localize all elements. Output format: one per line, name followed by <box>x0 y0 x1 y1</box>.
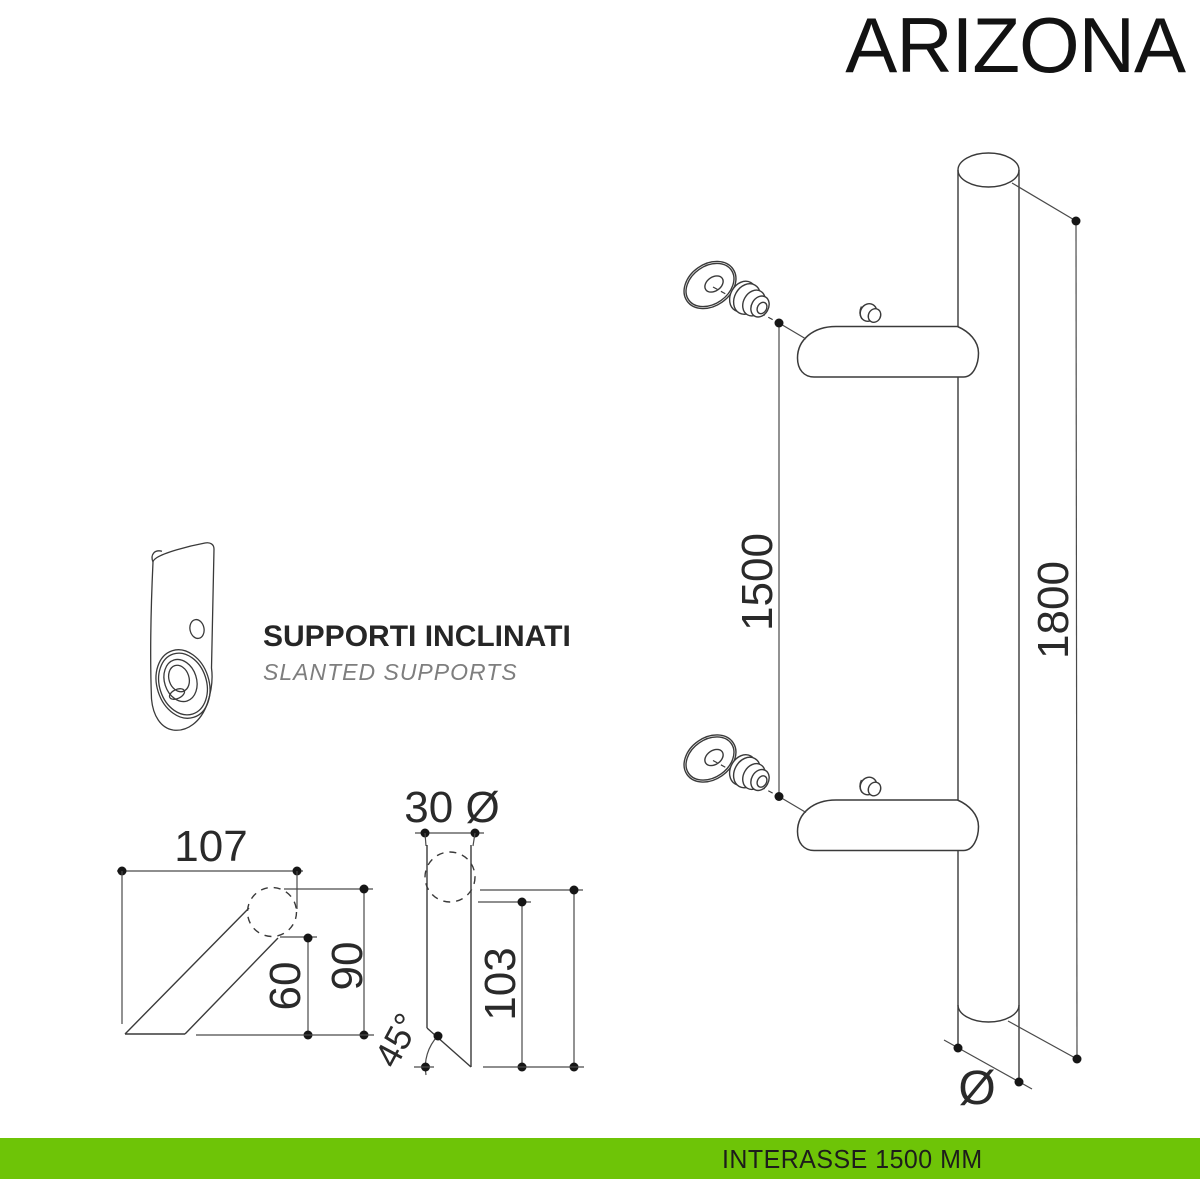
slanted-support-profile <box>125 908 278 1034</box>
note-subtitle: SLANTED SUPPORTS <box>263 659 571 686</box>
dim-1500-label: 1500 <box>733 533 782 631</box>
tube-section-dashed <box>248 888 297 937</box>
footer-label: INTERASSE 1500 MM <box>722 1144 983 1175</box>
support-note: SUPPORTI INCLINATI SLANTED SUPPORTS <box>263 620 571 686</box>
dim-45-label: 45° <box>366 1006 428 1073</box>
footer-bar: INTERASSE 1500 MM <box>0 1138 1200 1179</box>
dim-30-label: 30 Ø <box>404 783 499 832</box>
support-front-profile <box>427 845 471 1067</box>
dim-1800-label: 1800 <box>1029 561 1078 659</box>
tube-top-ellipse <box>958 153 1019 187</box>
lower-grub-screw <box>857 774 883 798</box>
handle-tube <box>958 153 1019 1082</box>
upper-fastener-set <box>675 252 883 328</box>
support-detail-drawing <box>147 543 218 730</box>
tube-bottom-arc <box>958 1005 1019 1022</box>
dim-1500-leader-top <box>779 323 806 339</box>
dim-1500-leader-bottom <box>779 797 806 813</box>
note-title: SUPPORTI INCLINATI <box>263 620 571 654</box>
dim-1500 <box>779 323 806 813</box>
dim-107-label: 107 <box>174 822 247 871</box>
dim-103-label: 103 <box>476 947 525 1020</box>
dim-1800-leader-top <box>1012 183 1076 221</box>
technical-drawing: 1500 1800 107 90 60 30 Ø 103 45° Ø <box>0 0 1200 1200</box>
chamfer-edge <box>427 1028 471 1067</box>
upper-grub-screw <box>857 301 883 325</box>
dim-90-label: 90 <box>323 942 372 991</box>
page: ARIZONA <box>0 0 1200 1200</box>
dim-60-label: 60 <box>261 962 310 1011</box>
tube-section-dashed-2 <box>425 852 475 902</box>
diameter-symbol-label: Ø <box>958 1062 995 1115</box>
upper-support-bracket <box>798 327 979 378</box>
lower-support-bracket <box>798 800 979 851</box>
